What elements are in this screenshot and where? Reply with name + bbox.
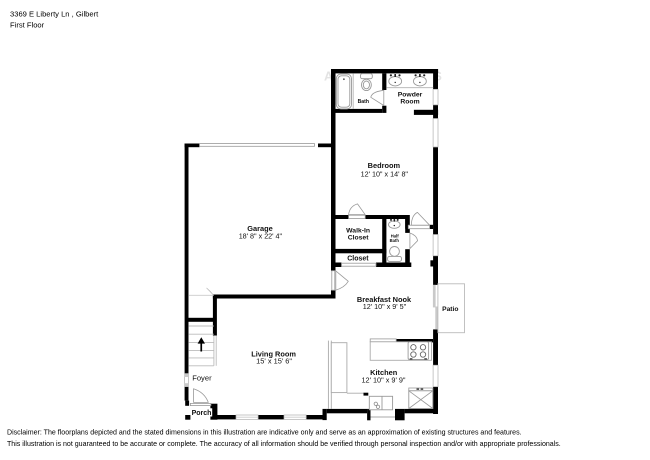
svg-text:Foyer: Foyer: [192, 373, 212, 382]
svg-text:This illustration is not guara: This illustration is not guaranteed to b…: [7, 441, 561, 448]
svg-text:Room: Room: [400, 99, 419, 106]
svg-text:18' 8" x 22' 4": 18' 8" x 22' 4": [239, 231, 283, 240]
svg-text:15' x 15' 6": 15' x 15' 6": [256, 356, 292, 365]
svg-text:Patio: Patio: [442, 306, 458, 313]
svg-text:Walk-In: Walk-In: [346, 227, 370, 234]
svg-text:Porch: Porch: [192, 410, 212, 417]
svg-text:First Floor: First Floor: [10, 21, 45, 30]
svg-text:Closet: Closet: [348, 235, 370, 242]
svg-text:Bath: Bath: [390, 238, 400, 243]
svg-text:Disclaimer: The floorplans dep: Disclaimer: The floorplans depicted and …: [7, 429, 522, 436]
svg-text:3369 E Liberty Ln , Gilbert: 3369 E Liberty Ln , Gilbert: [10, 9, 99, 18]
svg-text:Closet: Closet: [347, 255, 369, 262]
svg-text:12' 10" x 9' 5": 12' 10" x 9' 5": [363, 302, 407, 311]
svg-text:Bath: Bath: [358, 99, 369, 105]
svg-text:12' 10" x 14' 8": 12' 10" x 14' 8": [361, 170, 409, 179]
svg-text:12' 10" x 9' 9": 12' 10" x 9' 9": [361, 376, 405, 385]
